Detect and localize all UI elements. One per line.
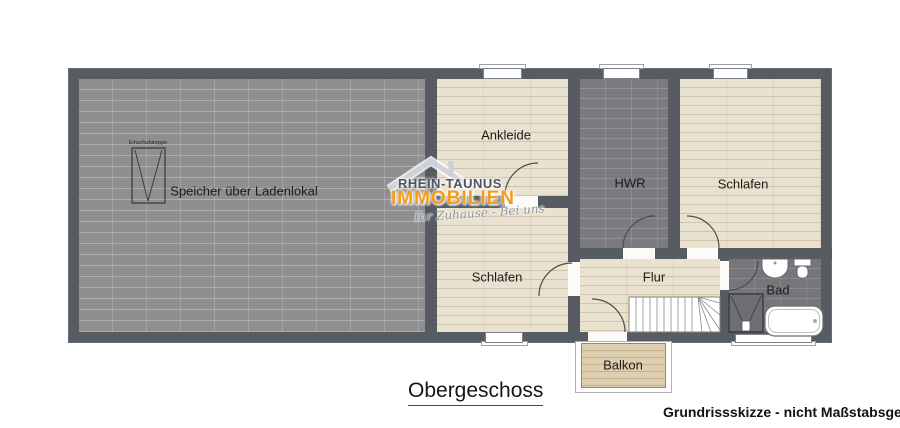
label-schlafen-top: Schlafen	[718, 177, 769, 192]
room-schlafen-top-floor	[680, 79, 821, 248]
door-opening-bad	[720, 261, 729, 290]
window-hwr	[603, 68, 640, 79]
window-ankleide	[483, 68, 522, 79]
label-bad: Bad	[766, 283, 789, 298]
label-flur: Flur	[643, 270, 665, 285]
window-schlafen-top	[713, 68, 748, 79]
disclaimer-text: Grundrissskizze - nicht Maßstabsgetreu!	[663, 404, 900, 420]
door-opening-schlafen-bottom	[568, 262, 580, 296]
label-schlafen-bottom: Schlafen	[472, 270, 523, 285]
floorplan-canvas: Speicher über Ladenlokal Ankleide HWR Sc…	[0, 0, 900, 428]
room-speicher-floor	[79, 79, 425, 332]
floor-title: Obergeschoss	[408, 379, 543, 406]
label-balkon: Balkon	[603, 358, 643, 373]
label-ankleide: Ankleide	[481, 128, 531, 143]
label-attic-ladder: Einschubtreppe	[129, 140, 167, 146]
door-opening-schlafen-top	[687, 248, 718, 259]
door-opening-hwr	[623, 248, 655, 259]
window-schlafen-bottom	[485, 332, 523, 343]
window-bad	[735, 334, 812, 343]
wall-hwr-schlafen	[668, 79, 680, 259]
room-hwr-floor	[580, 79, 668, 248]
label-speicher: Speicher über Ladenlokal	[170, 184, 317, 199]
label-hwr: HWR	[614, 176, 645, 191]
